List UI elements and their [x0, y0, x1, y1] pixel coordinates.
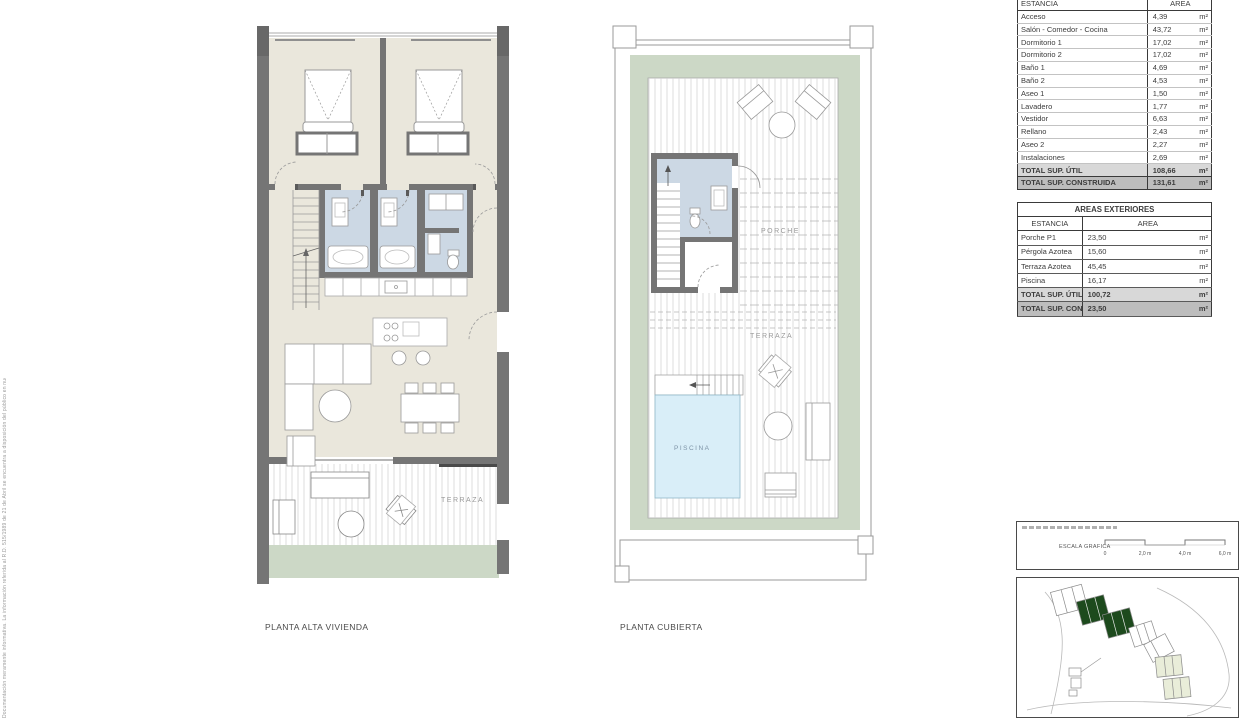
bed-dormitorio-2 [408, 70, 468, 154]
room-area: 1,77 [1147, 100, 1179, 113]
table-row: Aseo 22,27m² [1018, 138, 1212, 151]
table-title-row: AREAS EXTERIORES [1018, 203, 1212, 217]
site-buildings [1050, 584, 1191, 699]
total-util-row: TOTAL SUP. ÚTIL108,66m² [1018, 164, 1212, 177]
room-name: Acceso [1018, 10, 1148, 23]
plan-sheet: Documentación meramente informativa. La … [0, 0, 1240, 720]
caption-planta-cubierta: PLANTA CUBIERTA [620, 622, 703, 632]
floor-plan-planta-cubierta: PISCINA PORCHE TERRAZA [598, 18, 888, 608]
scale-tick-3: 6,0 m [1219, 551, 1232, 557]
total-area: 23,50 [1082, 302, 1147, 316]
kitchen-counter [325, 278, 467, 296]
room-area: 43,72 [1147, 23, 1179, 36]
total-unit: m² [1147, 288, 1212, 302]
col-estancia: ESTANCIA [1018, 217, 1083, 231]
room-unit: m² [1179, 10, 1211, 23]
room-area: 4,39 [1147, 10, 1179, 23]
table-row: Vestidor6,63m² [1018, 113, 1212, 126]
room-unit: m² [1179, 138, 1211, 151]
table-row: Baño 24,53m² [1018, 74, 1212, 87]
caption-planta-alta: PLANTA ALTA VIVIENDA [265, 622, 368, 632]
table-row: Aseo 11,50m² [1018, 87, 1212, 100]
table-row: Salón - Comedor - Cocina43,72m² [1018, 23, 1212, 36]
room-name: Terraza Azotea [1018, 259, 1083, 273]
total-unit: m² [1147, 302, 1212, 316]
room-unit: m² [1179, 74, 1211, 87]
room-name: Pérgola Azotea [1018, 245, 1083, 259]
room-unit: m² [1179, 113, 1211, 126]
pergola-zone [740, 166, 838, 310]
site-key-plan [1017, 578, 1238, 717]
room-area: 4,69 [1147, 61, 1179, 74]
room-unit: m² [1179, 87, 1211, 100]
room-name: Lavadero [1018, 100, 1148, 113]
dining-set [401, 383, 459, 433]
table-row: Dormitorio 217,02m² [1018, 49, 1212, 62]
scale-tick-0: 0 [1104, 551, 1107, 557]
table-row: Porche P123,50m² [1018, 231, 1212, 245]
total-unit: m² [1179, 164, 1211, 177]
room-name: Instalaciones [1018, 151, 1148, 164]
planter-strip [269, 545, 499, 578]
room-area: 45,45 [1082, 259, 1147, 273]
room-name: Baño 1 [1018, 61, 1148, 74]
room-unit: m² [1147, 231, 1212, 245]
room-unit: m² [1179, 100, 1211, 113]
total-construida-row: TOTAL SUP. CONSTRUIDA23,50m² [1018, 302, 1212, 316]
room-name: Piscina [1018, 273, 1083, 287]
room-area: 4,53 [1147, 74, 1179, 87]
table-row: Baño 14,69m² [1018, 61, 1212, 74]
room-name: Aseo 2 [1018, 138, 1148, 151]
site-key-plan-box [1016, 577, 1239, 718]
exterior-areas-table: AREAS EXTERIORES ESTANCIA AREA Porche P1… [1017, 202, 1212, 317]
room-area: 16,17 [1082, 273, 1147, 287]
terrace-lintel [439, 464, 497, 467]
total-area: 131,61 [1147, 177, 1179, 190]
room-unit: m² [1147, 273, 1212, 287]
room-name: Dormitorio 2 [1018, 49, 1148, 62]
table-row: Pérgola Azotea15,60m² [1018, 245, 1212, 259]
room-unit: m² [1179, 49, 1211, 62]
floor-plan-planta-alta: TERRAZA [253, 12, 513, 584]
porche-label: PORCHE [761, 228, 800, 235]
room-unit: m² [1147, 259, 1212, 273]
room-name: Baño 2 [1018, 74, 1148, 87]
table-header-row: ESTANCIA AREA [1018, 0, 1212, 10]
room-name: Aseo 1 [1018, 87, 1148, 100]
total-util-row: TOTAL SUP. ÚTIL100,72m² [1018, 288, 1212, 302]
room-area: 2,69 [1147, 151, 1179, 164]
stair-block-lower-room [685, 242, 732, 287]
col-area: AREA [1147, 0, 1211, 10]
table-row: Piscina16,17m² [1018, 273, 1212, 287]
piscina-label: PISCINA [674, 445, 711, 452]
graphic-scale-box: ESCALA GRAFICA 0 2,0 m 4,0 m 6,0 m [1016, 521, 1239, 570]
table-row: Lavadero1,77m² [1018, 100, 1212, 113]
bed-dormitorio-1 [297, 70, 357, 154]
col-estancia: ESTANCIA [1018, 0, 1148, 10]
room-unit: m² [1179, 151, 1211, 164]
room-unit: m² [1147, 245, 1212, 259]
room-unit: m² [1179, 36, 1211, 49]
room-area: 17,02 [1147, 36, 1179, 49]
col-area: AREA [1082, 217, 1211, 231]
table-row: Acceso4,39m² [1018, 10, 1212, 23]
room-area: 17,02 [1147, 49, 1179, 62]
room-unit: m² [1179, 61, 1211, 74]
room-name: Porche P1 [1018, 231, 1083, 245]
room-unit: m² [1179, 23, 1211, 36]
room-area: 1,50 [1147, 87, 1179, 100]
table-row: Dormitorio 117,02m² [1018, 36, 1212, 49]
roof-stairs [657, 165, 680, 287]
table-header-row: ESTANCIA AREA [1018, 217, 1212, 231]
total-unit: m² [1179, 177, 1211, 190]
total-label: TOTAL SUP. ÚTIL [1018, 164, 1148, 177]
total-area: 100,72 [1082, 288, 1147, 302]
room-area: 2,27 [1147, 138, 1179, 151]
terraza-label-cubierta: TERRAZA [750, 333, 793, 340]
pool-stairs [655, 375, 743, 395]
scale-tick-2: 4,0 m [1179, 551, 1192, 557]
total-label: TOTAL SUP. CONSTRUIDA [1018, 302, 1083, 316]
room-area: 15,60 [1082, 245, 1147, 259]
terraza-label-alta: TERRAZA [441, 497, 484, 504]
table-row: Rellano2,43m² [1018, 125, 1212, 138]
total-construida-row: TOTAL SUP. CONSTRUIDA131,61m² [1018, 177, 1212, 190]
room-name: Salón - Comedor - Cocina [1018, 23, 1148, 36]
scale-bar [1017, 522, 1238, 569]
scale-tick-1: 2,0 m [1139, 551, 1152, 557]
exterior-table-title: AREAS EXTERIORES [1018, 203, 1212, 217]
total-area: 108,66 [1147, 164, 1179, 177]
legal-disclaimer-vertical-text: Documentación meramente informativa. La … [2, 378, 12, 718]
room-unit: m² [1179, 125, 1211, 138]
table-row: Terraza Azotea45,45m² [1018, 259, 1212, 273]
table-row: Instalaciones2,69m² [1018, 151, 1212, 164]
room-area: 2,43 [1147, 125, 1179, 138]
room-name: Vestidor [1018, 113, 1148, 126]
terrace-decking [269, 464, 497, 545]
room-area: 6,63 [1147, 113, 1179, 126]
room-name: Dormitorio 1 [1018, 36, 1148, 49]
total-label: TOTAL SUP. ÚTIL [1018, 288, 1083, 302]
interior-areas-table: ESTANCIA AREA Acceso4,39m² Salón - Comed… [1017, 0, 1212, 190]
total-label: TOTAL SUP. CONSTRUIDA [1018, 177, 1148, 190]
room-area: 23,50 [1082, 231, 1147, 245]
room-name: Rellano [1018, 125, 1148, 138]
